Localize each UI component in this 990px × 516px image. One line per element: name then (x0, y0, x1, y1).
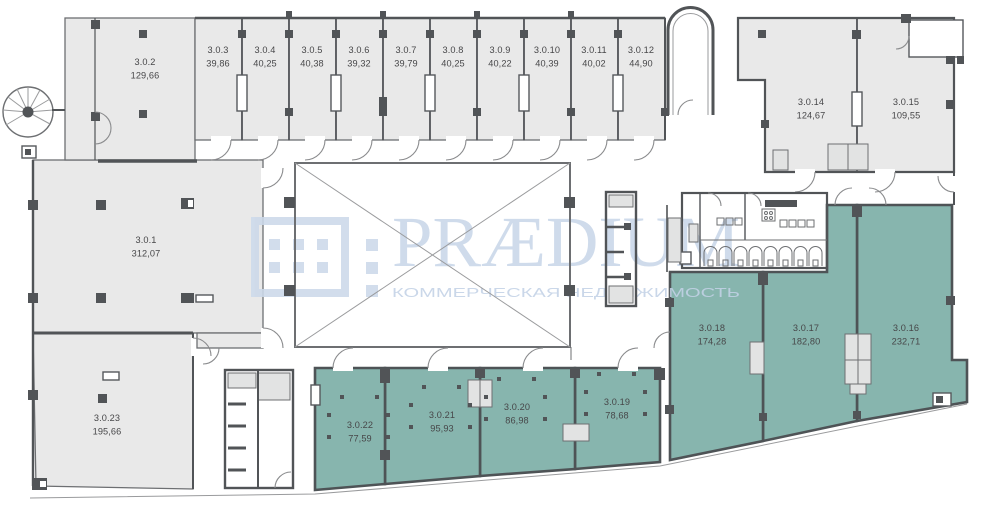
room-3-0-9[interactable] (477, 18, 524, 140)
floor-plan: PRÆDIUM КОММЕРЧЕСКАЯ НЕДВИЖИМОСТЬ (0, 0, 990, 516)
room-3-0-8[interactable] (430, 18, 477, 140)
spiral-stair-icon (3, 87, 65, 158)
bottom-stair-core (225, 370, 293, 488)
teal-top-doors (333, 332, 670, 371)
watermark-brand: PRÆDIUM (392, 202, 740, 282)
room-3-0-5[interactable] (289, 18, 336, 140)
room-3-0-10[interactable] (524, 18, 571, 140)
praedium-logo-square (255, 221, 345, 293)
room-3-0-4[interactable] (242, 18, 289, 140)
room-3-0-23[interactable] (33, 333, 193, 489)
room-3-0-3[interactable] (195, 18, 242, 140)
arch-stair-tower (668, 8, 713, 116)
room-3-0-7[interactable] (383, 18, 430, 140)
room-3-0-18[interactable] (670, 272, 763, 460)
room-3-0-12[interactable] (618, 18, 665, 140)
floor-plan-canvas: PRÆDIUM КОММЕРЧЕСКАЯ НЕДВИЖИМОСТЬ (0, 0, 990, 516)
room-3-0-11[interactable] (571, 18, 618, 140)
room-3-0-16[interactable] (857, 205, 967, 421)
room-3-0-1[interactable] (33, 160, 263, 333)
corridor-stub (197, 333, 263, 348)
room-3-0-2[interactable] (65, 18, 195, 160)
room-3-0-6[interactable] (336, 18, 383, 140)
